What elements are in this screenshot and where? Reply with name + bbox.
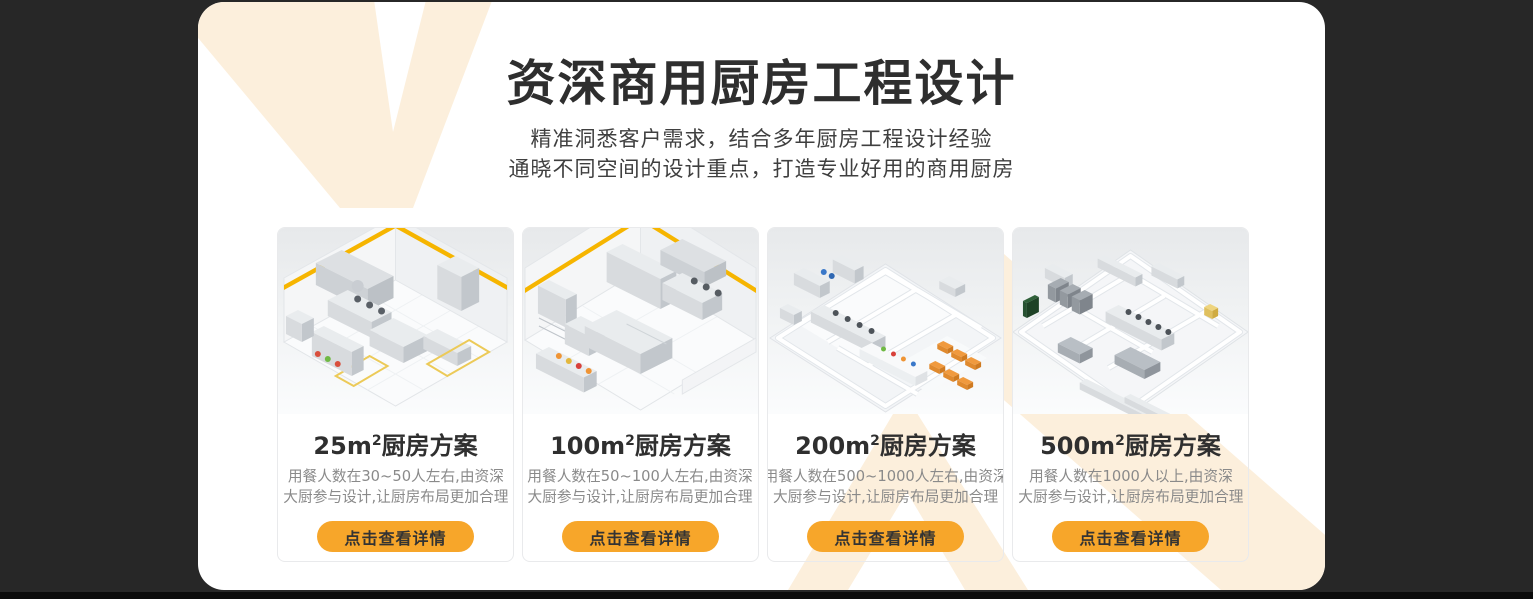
content-panel: 资深商用厨房工程设计 精准洞悉客户需求，结合多年厨房工程设计经验 通晓不同空间的… — [198, 2, 1325, 590]
plan-area-sup: 2 — [1115, 433, 1125, 449]
subtitle-line-1: 精准洞悉客户需求，结合多年厨房工程设计经验 — [198, 124, 1325, 154]
plan-desc-line-2: 大厨参与设计,让厨房布局更加合理 — [283, 487, 508, 508]
plan-cards-row: 25m2厨房方案 用餐人数在30~50人左右,由资深 大厨参与设计,让厨房布局更… — [277, 227, 1249, 562]
plan-card-title: 200m2厨房方案 — [795, 426, 976, 461]
plan-card-description: 用餐人数在30~50人左右,由资深 大厨参与设计,让厨房布局更加合理 — [283, 466, 508, 507]
plan-desc-line-2: 大厨参与设计,让厨房布局更加合理 — [528, 487, 753, 508]
section-header: 资深商用厨房工程设计 精准洞悉客户需求，结合多年厨房工程设计经验 通晓不同空间的… — [198, 2, 1325, 184]
plan-card-description: 用餐人数在50~100人左右,由资深 大厨参与设计,让厨房布局更加合理 — [528, 466, 753, 507]
plan-desc-line-2: 大厨参与设计,让厨房布局更加合理 — [1018, 487, 1243, 508]
kitchen-render-500m2-image[interactable] — [1013, 228, 1248, 414]
plan-desc-line-1: 用餐人数在1000人以上,由资深 — [1018, 466, 1243, 487]
plan-area-value: 200m — [795, 432, 870, 460]
view-details-button[interactable]: 点击查看详情 — [317, 521, 473, 552]
plan-title-suffix: 厨房方案 — [382, 432, 478, 460]
subtitle-line-2: 通晓不同空间的设计重点，打造专业好用的商用厨房 — [198, 154, 1325, 184]
plan-card-100m2: 100m2厨房方案 用餐人数在50~100人左右,由资深 大厨参与设计,让厨房布… — [522, 227, 759, 562]
plan-desc-line-1: 用餐人数在30~50人左右,由资深 — [283, 466, 508, 487]
plan-area-value: 100m — [550, 432, 625, 460]
kitchen-design-section: 资深商用厨房工程设计 精准洞悉客户需求，结合多年厨房工程设计经验 通晓不同空间的… — [0, 0, 1533, 599]
plan-card-title: 25m2厨房方案 — [313, 426, 477, 461]
plan-area-sup: 2 — [625, 433, 635, 449]
plan-desc-line-1: 用餐人数在50~100人左右,由资深 — [528, 466, 753, 487]
bottom-divider — [0, 592, 1533, 599]
page-title: 资深商用厨房工程设计 — [198, 56, 1325, 112]
plan-area-sup: 2 — [870, 433, 880, 449]
plan-desc-line-2: 大厨参与设计,让厨房布局更加合理 — [767, 487, 1004, 508]
kitchen-render-25m2-image[interactable] — [278, 228, 513, 414]
plan-card-title: 100m2厨房方案 — [550, 426, 731, 461]
plan-desc-line-1: 用餐人数在500~1000人左右,由资深 — [767, 466, 1004, 487]
plan-area-value: 25m — [313, 432, 371, 460]
plan-card-title: 500m2厨房方案 — [1040, 426, 1221, 461]
plan-area-sup: 2 — [372, 433, 382, 449]
kitchen-render-100m2-image[interactable] — [523, 228, 758, 414]
view-details-button[interactable]: 点击查看详情 — [1052, 521, 1208, 552]
plan-card-500m2: 500m2厨房方案 用餐人数在1000人以上,由资深 大厨参与设计,让厨房布局更… — [1012, 227, 1249, 562]
plan-card-description: 用餐人数在1000人以上,由资深 大厨参与设计,让厨房布局更加合理 — [1018, 466, 1243, 507]
plan-area-value: 500m — [1040, 432, 1115, 460]
plan-card-200m2: 200m2厨房方案 用餐人数在500~1000人左右,由资深 大厨参与设计,让厨… — [767, 227, 1004, 562]
plan-title-suffix: 厨房方案 — [635, 432, 731, 460]
plan-title-suffix: 厨房方案 — [880, 432, 976, 460]
view-details-button[interactable]: 点击查看详情 — [562, 521, 718, 552]
plan-title-suffix: 厨房方案 — [1125, 432, 1221, 460]
kitchen-render-200m2-image[interactable] — [768, 228, 1003, 414]
plan-card-description: 用餐人数在500~1000人左右,由资深 大厨参与设计,让厨房布局更加合理 — [767, 466, 1004, 507]
plan-card-25m2: 25m2厨房方案 用餐人数在30~50人左右,由资深 大厨参与设计,让厨房布局更… — [277, 227, 514, 562]
view-details-button[interactable]: 点击查看详情 — [807, 521, 963, 552]
